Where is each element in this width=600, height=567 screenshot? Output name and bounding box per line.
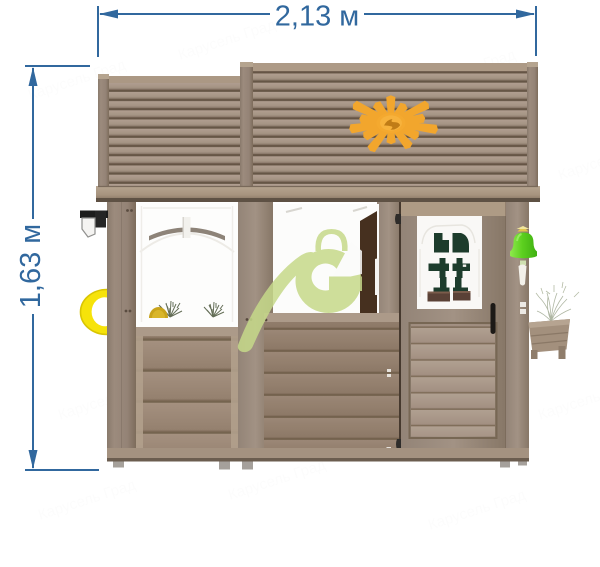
svg-text:1,63 м: 1,63 м xyxy=(15,224,47,308)
svg-text:2,13 м: 2,13 м xyxy=(275,1,359,33)
